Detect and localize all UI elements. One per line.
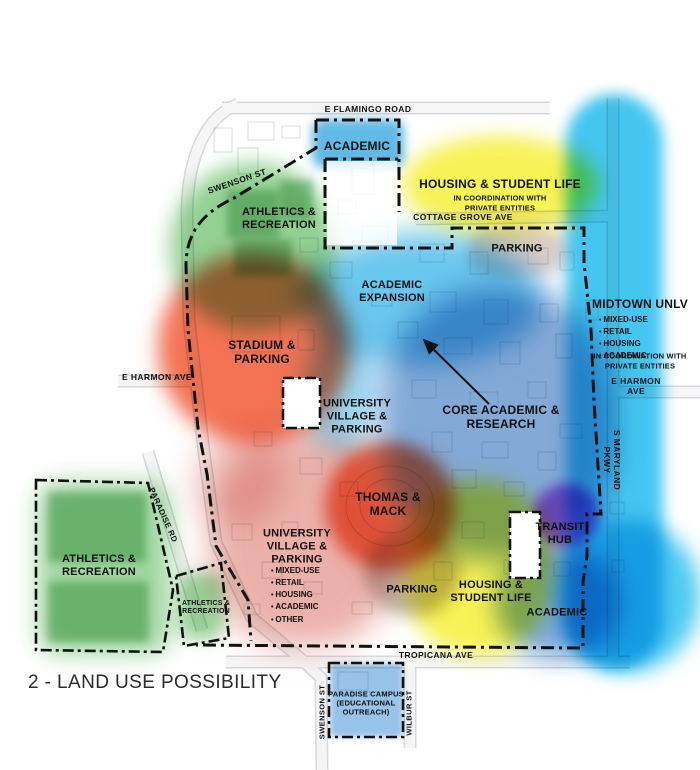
road-label-tropicana: TROPICANA AVE [399,650,473,660]
label-parking-north: PARKING [491,243,542,256]
label-transit-hub: TRANSIT HUB [535,521,584,547]
university-village-south-items: MIXED-USE RETAIL HOUSING ACADEMIC OTHER [271,565,320,626]
label-athletics-north: ATHLETICS & RECREATION [242,206,316,232]
label-housing-north: HOUSING & STUDENT LIFE [419,177,581,191]
note-housing-north: IN COORDINATION WITH PRIVATE ENTITIES [453,193,546,213]
label-academic-expansion: ACADEMIC EXPANSION [359,279,425,305]
label-midtown: MIDTOWN UNLV [590,297,690,311]
road-label-cottage-grove: COTTAGE GROVE AVE [413,212,513,222]
label-academic-north: ACADEMIC [324,139,390,153]
expansion-arrow [424,340,489,404]
label-paradise-campus: PARADISE CAMPUS (EDUCATIONAL OUTREACH) [328,691,404,718]
road-label-swenson-south: SWENSON ST [319,685,328,739]
map-title: 2 - LAND USE POSSIBILITY [28,672,282,694]
road-label-maryland: S MARYLAND PKWY [602,416,622,504]
note-midtown: IN COORDINATION WITH PRIVATE ENTITIES [590,351,690,371]
label-university-village-mid: UNIVERSITY VILLAGE & PARKING [323,398,391,437]
white-parcel-academic [327,161,397,245]
road-label-harmon-west: E HARMON AVE [122,372,192,382]
white-parcel-harmon [283,378,320,428]
label-athletics-southwest-small: ATHLETICS & RECREATION [182,600,230,617]
label-parking-south: PARKING [386,584,437,597]
label-thomas-mack: THOMAS & MACK [355,490,421,518]
boundary-layer [0,0,700,770]
road-label-harmon-east: E HARMON AVE [604,376,668,396]
label-housing-south: HOUSING & STUDENT LIFE [450,579,531,605]
label-stadium: STADIUM & PARKING [228,338,296,366]
land-use-map: E FLAMINGO ROAD SWENSON ST COTTAGE GROVE… [0,0,700,770]
label-athletics-southwest: ATHLETICS & RECREATION [62,553,136,579]
road-label-wilbur: WILBUR ST [406,690,415,735]
label-academic-south: ACADEMIC [527,607,588,620]
label-university-village-south: UNIVERSITY VILLAGE & PARKING [263,528,331,567]
label-core-academic: CORE ACADEMIC & RESEARCH [442,403,559,431]
road-label-flamingo: E FLAMINGO ROAD [325,104,412,114]
